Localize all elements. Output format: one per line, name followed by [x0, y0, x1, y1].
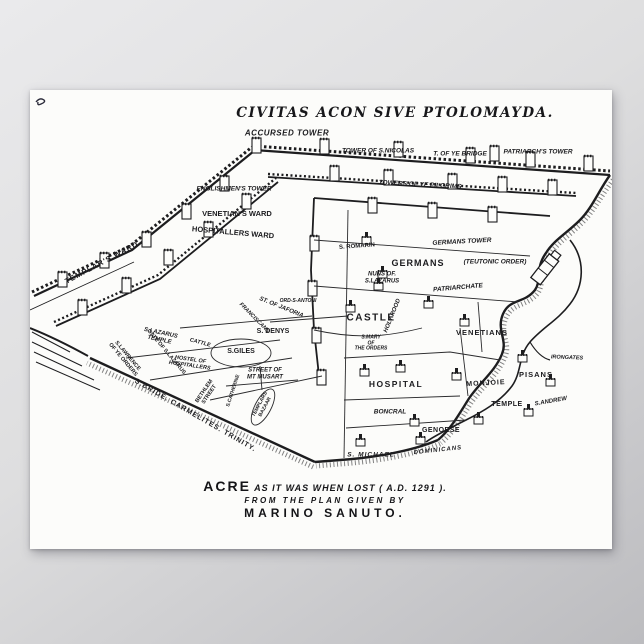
caption-line2: FROM THE PLAN GIVEN BY: [125, 496, 525, 505]
label-tower-of-s-nicolas: TOWER OF S.NICOLAS: [342, 147, 414, 154]
label-s-denys: S. DENYS: [257, 328, 290, 336]
label-germans: GERMANS: [391, 258, 444, 268]
label-irongates: IRONGATES: [551, 354, 583, 361]
label-patriarchs-tower: PATRIARCH'S TOWER: [503, 148, 572, 155]
label-hospital: HOSPITAL: [369, 380, 423, 390]
caption-acre: ACRE: [203, 478, 251, 494]
label-teutonic-order: (TEUTONIC ORDER): [464, 258, 527, 265]
label-ord-s-antoni: ORD-S-ANTONI: [280, 299, 317, 305]
label-genoese: GENOESE: [422, 427, 460, 435]
label-street-of-mt-musart: STREET OF MT MUSART: [247, 367, 283, 380]
map-caption: ACRE AS IT WAS WHEN LOST ( A.D. 1291 ). …: [125, 478, 525, 520]
label-venetians-ward: VENETIAN'S WARD: [202, 210, 272, 218]
label-nuns-of-s-lazarus: NUNS OF. S.LAZARUS: [365, 271, 399, 284]
caption-line1: ACRE AS IT WAS WHEN LOST ( A.D. 1291 ).: [125, 478, 525, 494]
label-temple: TEMPLE: [491, 401, 522, 409]
label-s-mary-of-the-orders: S.MARY OF THE ORDERS: [355, 336, 388, 353]
label-s-michael: S. MICHAEL: [347, 451, 395, 458]
caption-line1-rest: AS IT WAS WHEN LOST ( A.D. 1291 ).: [254, 483, 447, 493]
poster: CIVITAS ACON SIVE PTOLOMAYDA. ACCURSED T…: [30, 90, 612, 549]
label-venetians: VENETIANS: [456, 329, 508, 337]
label-englishmens-tower: ENGLISHMEN'S TOWER: [196, 185, 271, 192]
label-t-of-ye-bridge: T. OF YE BRIDGE: [433, 150, 487, 157]
coastline: [30, 175, 612, 467]
caption-line3: MARINO SANUTO.: [125, 506, 525, 520]
page-background: CIVITAS ACON SIVE PTOLOMAYDA. ACCURSED T…: [0, 0, 644, 644]
label-accursed-tower: ACCURSED TOWER: [245, 130, 329, 139]
label-s-giles: S.GILES: [227, 348, 255, 356]
label-boncral: BONCRAL: [374, 408, 407, 415]
pen-mark: [36, 99, 45, 105]
lighthouse-icon: [531, 249, 563, 285]
map-title: CIVITAS ACON SIVE PTOLOMAYDA.: [236, 105, 554, 121]
label-pisans: PISANS: [519, 371, 553, 379]
